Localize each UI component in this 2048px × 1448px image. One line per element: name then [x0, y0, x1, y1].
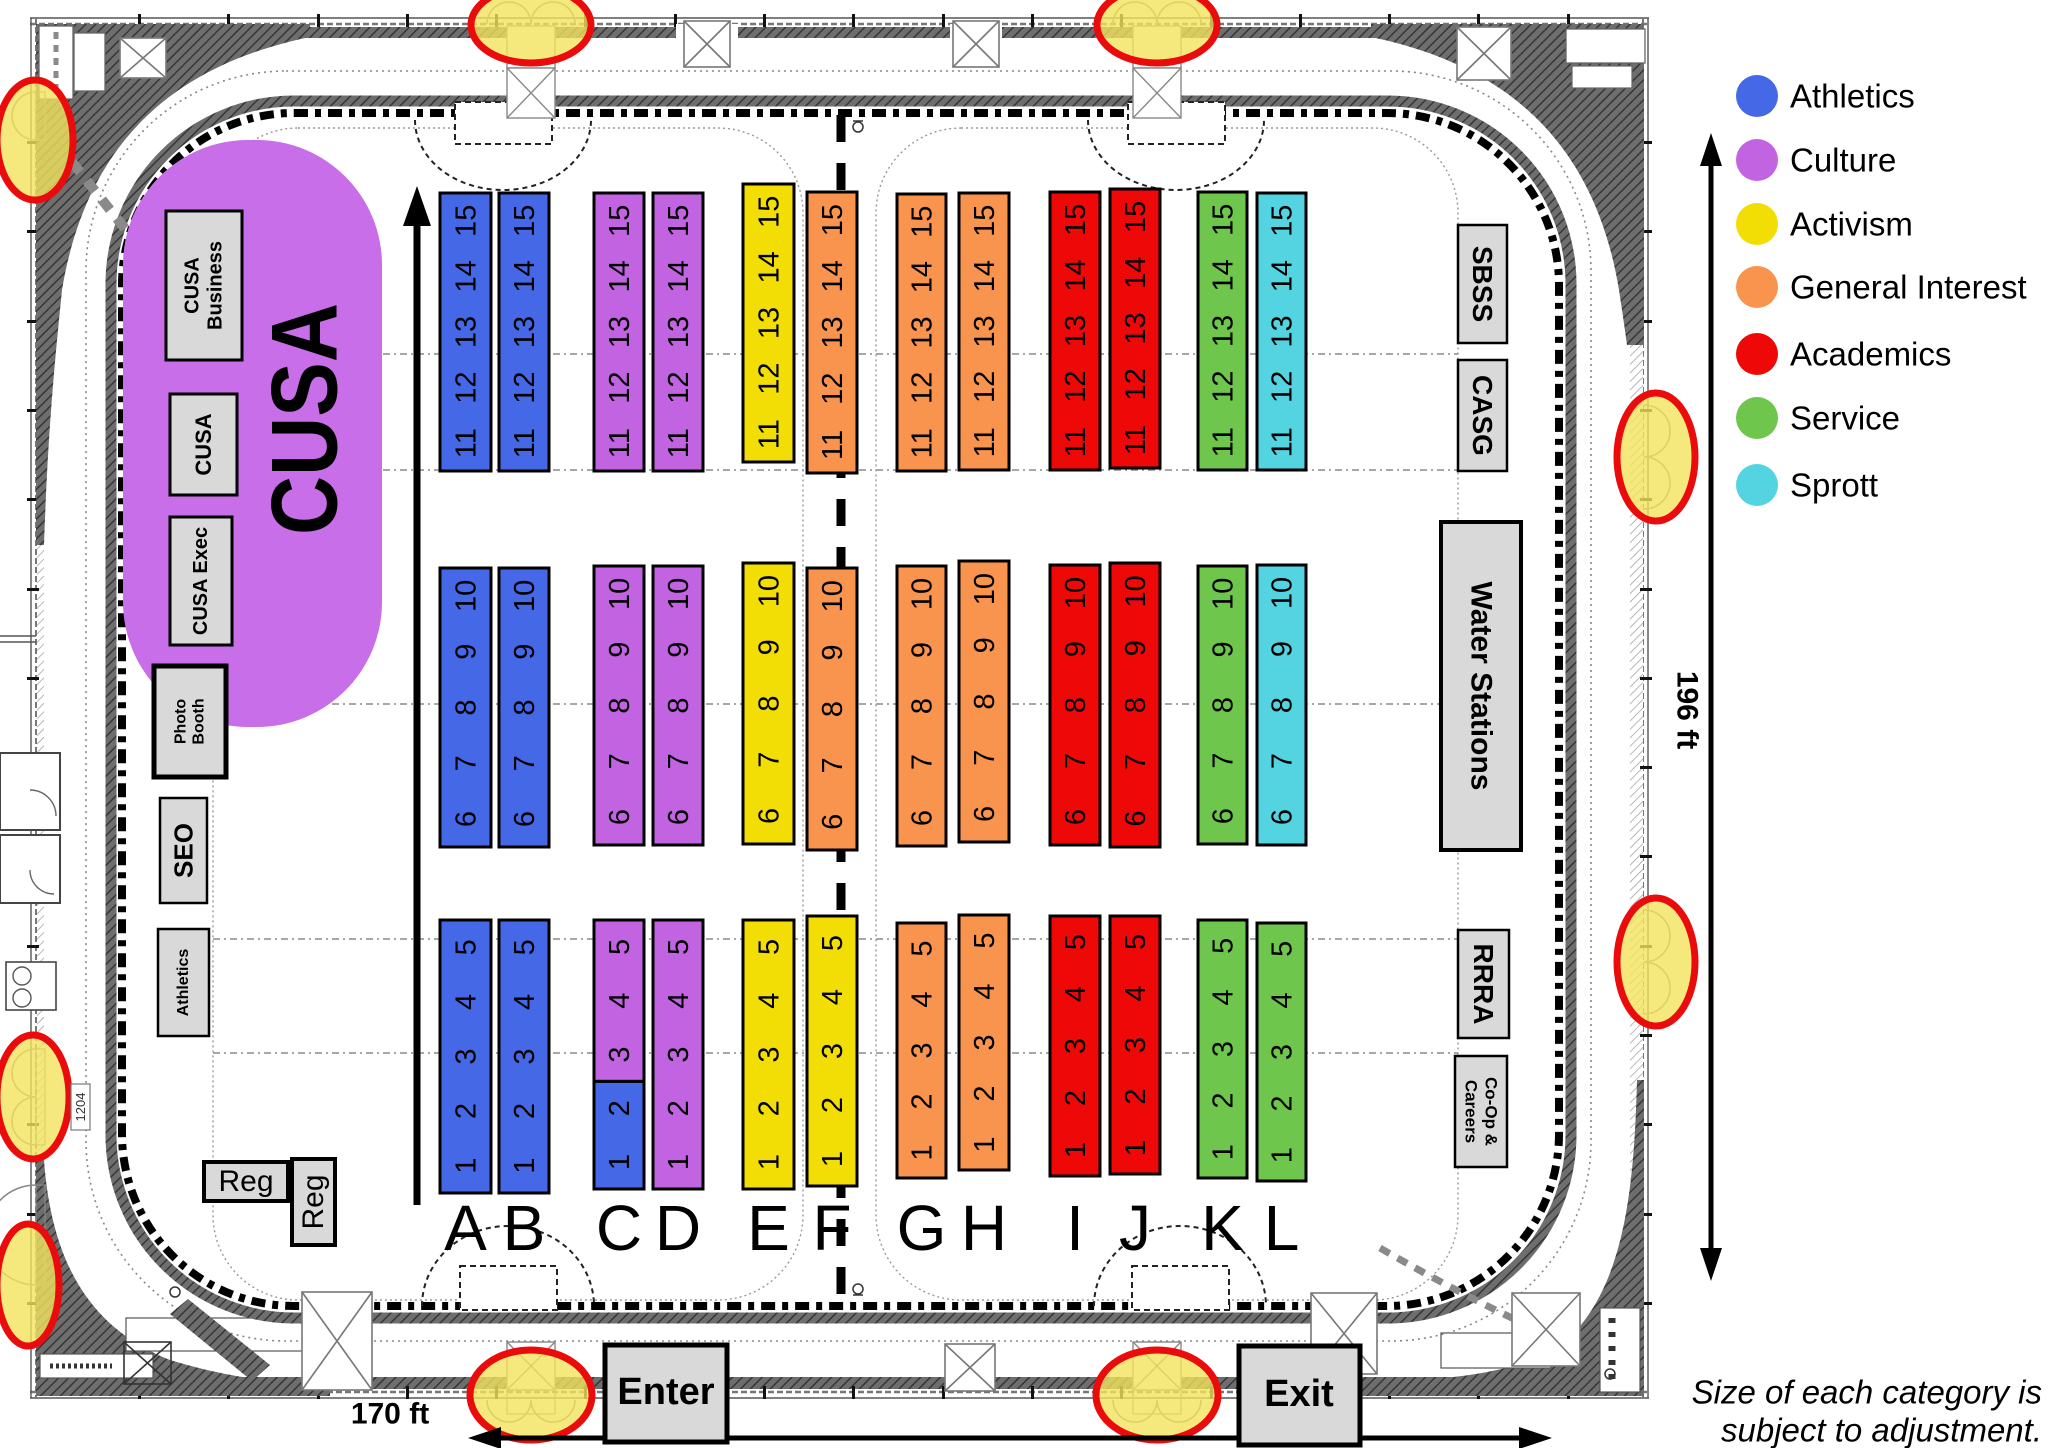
svg-text:8: 8: [817, 701, 849, 717]
svg-text:CUSA: CUSA: [182, 257, 204, 314]
svg-text:6: 6: [907, 810, 939, 826]
svg-text:11: 11: [907, 428, 939, 458]
svg-text:6: 6: [1120, 811, 1152, 827]
svg-text:4: 4: [509, 994, 541, 1010]
svg-text:15: 15: [1267, 205, 1299, 237]
svg-text:5: 5: [907, 940, 939, 956]
svg-text:14: 14: [509, 260, 541, 292]
svg-text:3: 3: [451, 1048, 483, 1064]
svg-text:5: 5: [817, 935, 849, 951]
svg-text:11: 11: [1267, 427, 1299, 457]
svg-text:2: 2: [1120, 1089, 1152, 1105]
svg-text:8: 8: [1060, 697, 1092, 713]
svg-text:13: 13: [969, 315, 1001, 347]
svg-text:Athletics: Athletics: [175, 949, 192, 1017]
svg-text:5: 5: [509, 939, 541, 955]
svg-text:13: 13: [1267, 315, 1299, 347]
svg-text:15: 15: [1120, 201, 1152, 233]
svg-text:4: 4: [604, 993, 636, 1009]
svg-text:5: 5: [1060, 934, 1092, 950]
svg-text:12: 12: [1208, 370, 1240, 402]
svg-text:H: H: [961, 1192, 1007, 1264]
svg-text:7: 7: [1208, 753, 1240, 769]
svg-text:3: 3: [817, 1043, 849, 1059]
svg-text:CUSA Exec: CUSA Exec: [190, 527, 212, 635]
svg-text:1: 1: [1120, 1140, 1152, 1156]
svg-text:8: 8: [969, 693, 1001, 709]
svg-text:2: 2: [754, 1100, 786, 1116]
svg-text:10: 10: [451, 580, 483, 612]
svg-text:5: 5: [604, 939, 636, 955]
svg-text:5: 5: [754, 939, 786, 955]
svg-text:2: 2: [1267, 1096, 1299, 1112]
svg-text:Activism: Activism: [1790, 206, 1913, 243]
svg-text:11: 11: [817, 430, 849, 460]
svg-text:4: 4: [1267, 992, 1299, 1008]
svg-text:Water Stations: Water Stations: [1465, 582, 1498, 791]
svg-text:2: 2: [817, 1097, 849, 1113]
svg-text:7: 7: [907, 754, 939, 770]
svg-text:9: 9: [663, 642, 695, 658]
svg-text:11: 11: [754, 419, 786, 449]
svg-text:7: 7: [754, 752, 786, 768]
svg-text:6: 6: [969, 806, 1001, 822]
svg-text:9: 9: [1120, 640, 1152, 656]
svg-text:10: 10: [663, 578, 695, 610]
svg-text:3: 3: [1267, 1044, 1299, 1060]
svg-text:A: A: [444, 1192, 487, 1264]
svg-text:Photo: Photo: [172, 699, 189, 745]
svg-text:7: 7: [1060, 753, 1092, 769]
svg-text:Academics: Academics: [1790, 336, 1951, 373]
svg-text:4: 4: [1060, 986, 1092, 1002]
svg-text:6: 6: [509, 811, 541, 827]
svg-text:2: 2: [509, 1103, 541, 1119]
svg-text:B: B: [503, 1192, 546, 1264]
svg-text:D: D: [655, 1192, 701, 1264]
svg-text:12: 12: [663, 371, 695, 403]
svg-text:L: L: [1264, 1192, 1300, 1264]
svg-text:8: 8: [1267, 697, 1299, 713]
svg-text:15: 15: [451, 205, 483, 237]
svg-text:2: 2: [969, 1085, 1001, 1101]
svg-text:6: 6: [451, 811, 483, 827]
svg-text:10: 10: [969, 573, 1001, 605]
svg-text:15: 15: [509, 205, 541, 237]
svg-text:10: 10: [1060, 577, 1092, 609]
svg-text:14: 14: [1208, 259, 1240, 291]
svg-text:14: 14: [451, 260, 483, 292]
svg-text:15: 15: [907, 206, 939, 238]
svg-text:12: 12: [451, 371, 483, 403]
svg-text:12: 12: [1060, 370, 1092, 402]
svg-text:10: 10: [1267, 577, 1299, 609]
svg-text:10: 10: [907, 578, 939, 610]
svg-text:1: 1: [509, 1158, 541, 1174]
svg-text:9: 9: [907, 642, 939, 658]
svg-text:5: 5: [1120, 934, 1152, 950]
svg-text:5: 5: [1267, 941, 1299, 957]
svg-text:14: 14: [969, 260, 1001, 292]
svg-text:10: 10: [509, 580, 541, 612]
svg-text:K: K: [1201, 1192, 1244, 1264]
svg-text:1: 1: [1267, 1147, 1299, 1163]
svg-text:1: 1: [1208, 1144, 1240, 1160]
svg-text:CASG: CASG: [1467, 375, 1498, 456]
svg-text:8: 8: [1208, 697, 1240, 713]
svg-text:1: 1: [1060, 1142, 1092, 1158]
svg-text:1: 1: [907, 1144, 939, 1160]
svg-text:Co-Op &: Co-Op &: [1481, 1077, 1500, 1146]
svg-text:5: 5: [663, 939, 695, 955]
svg-text:1: 1: [604, 1154, 636, 1170]
svg-text:2: 2: [451, 1103, 483, 1119]
svg-text:4: 4: [663, 993, 695, 1009]
svg-text:13: 13: [907, 316, 939, 348]
svg-text:15: 15: [1060, 204, 1092, 236]
svg-text:10: 10: [817, 580, 849, 612]
svg-text:8: 8: [1120, 697, 1152, 713]
svg-text:8: 8: [604, 697, 636, 713]
svg-text:14: 14: [1267, 260, 1299, 292]
svg-text:14: 14: [1060, 259, 1092, 291]
svg-text:2: 2: [1208, 1093, 1240, 1109]
svg-text:I: I: [1066, 1192, 1084, 1264]
svg-text:15: 15: [754, 196, 786, 228]
svg-text:10: 10: [1208, 578, 1240, 610]
svg-text:subject to adjustment.: subject to adjustment.: [1721, 1412, 2042, 1448]
svg-text:4: 4: [907, 991, 939, 1007]
svg-text:2: 2: [1060, 1090, 1092, 1106]
svg-text:11: 11: [509, 428, 541, 458]
svg-text:Exit: Exit: [1264, 1373, 1334, 1415]
svg-text:F: F: [812, 1192, 851, 1264]
svg-text:3: 3: [509, 1048, 541, 1064]
svg-text:6: 6: [754, 808, 786, 824]
svg-text:3: 3: [1120, 1037, 1152, 1053]
svg-text:12: 12: [1267, 371, 1299, 403]
svg-text:3: 3: [754, 1046, 786, 1062]
svg-text:8: 8: [451, 699, 483, 715]
svg-text:6: 6: [1267, 809, 1299, 825]
svg-text:15: 15: [604, 205, 636, 237]
svg-text:Size of each category is: Size of each category is: [1692, 1374, 2042, 1411]
svg-text:12: 12: [604, 371, 636, 403]
svg-text:3: 3: [1060, 1038, 1092, 1054]
svg-text:9: 9: [817, 645, 849, 661]
svg-text:7: 7: [969, 750, 1001, 766]
svg-text:13: 13: [1120, 312, 1152, 344]
svg-text:9: 9: [604, 642, 636, 658]
svg-text:7: 7: [1267, 753, 1299, 769]
svg-text:Enter: Enter: [617, 1371, 714, 1413]
svg-text:13: 13: [817, 316, 849, 348]
svg-text:General Interest: General Interest: [1790, 269, 2027, 306]
svg-text:4: 4: [1208, 989, 1240, 1005]
svg-text:Culture: Culture: [1790, 142, 1896, 179]
svg-text:11: 11: [969, 427, 1001, 457]
svg-text:15: 15: [1208, 204, 1240, 236]
svg-text:14: 14: [907, 261, 939, 293]
svg-text:13: 13: [1060, 315, 1092, 347]
svg-text:13: 13: [604, 316, 636, 348]
svg-text:Sprott: Sprott: [1790, 467, 1878, 504]
svg-text:2: 2: [604, 1100, 636, 1116]
svg-text:13: 13: [663, 316, 695, 348]
svg-text:Reg: Reg: [218, 1165, 273, 1198]
svg-text:4: 4: [969, 983, 1001, 999]
svg-text:3: 3: [663, 1046, 695, 1062]
svg-text:6: 6: [1060, 809, 1092, 825]
svg-text:13: 13: [509, 316, 541, 348]
svg-text:14: 14: [754, 251, 786, 283]
svg-text:3: 3: [604, 1046, 636, 1062]
svg-text:9: 9: [1060, 641, 1092, 657]
svg-text:9: 9: [1208, 641, 1240, 657]
svg-text:12: 12: [817, 373, 849, 405]
svg-text:7: 7: [1120, 754, 1152, 770]
svg-text:9: 9: [1267, 641, 1299, 657]
svg-text:6: 6: [604, 809, 636, 825]
svg-text:1: 1: [817, 1151, 849, 1167]
svg-text:3: 3: [969, 1034, 1001, 1050]
svg-text:7: 7: [451, 755, 483, 771]
svg-text:G: G: [897, 1192, 947, 1264]
svg-text:RRRA: RRRA: [1468, 944, 1499, 1025]
svg-text:14: 14: [817, 260, 849, 292]
svg-text:6: 6: [817, 814, 849, 830]
svg-text:Service: Service: [1790, 400, 1900, 437]
svg-text:Reg: Reg: [297, 1174, 330, 1229]
svg-text:8: 8: [663, 697, 695, 713]
svg-text:4: 4: [451, 994, 483, 1010]
svg-text:5: 5: [969, 932, 1001, 948]
svg-text:3: 3: [1208, 1041, 1240, 1057]
svg-text:13: 13: [754, 307, 786, 339]
svg-text:11: 11: [663, 428, 695, 458]
svg-text:8: 8: [754, 695, 786, 711]
svg-text:SBSS: SBSS: [1467, 246, 1498, 322]
svg-text:12: 12: [509, 371, 541, 403]
svg-text:14: 14: [1120, 257, 1152, 289]
svg-text:11: 11: [451, 428, 483, 458]
svg-text:E: E: [747, 1192, 790, 1264]
svg-text:12: 12: [754, 362, 786, 394]
svg-text:15: 15: [817, 204, 849, 236]
svg-text:5: 5: [451, 939, 483, 955]
svg-text:SEO: SEO: [169, 823, 199, 878]
svg-text:11: 11: [1120, 425, 1152, 455]
svg-text:11: 11: [604, 428, 636, 458]
svg-text:1: 1: [451, 1158, 483, 1174]
svg-text:2: 2: [907, 1093, 939, 1109]
svg-text:11: 11: [1060, 427, 1092, 457]
svg-text:12: 12: [969, 371, 1001, 403]
svg-text:170 ft: 170 ft: [351, 1398, 429, 1431]
svg-text:6: 6: [663, 809, 695, 825]
svg-text:13: 13: [451, 316, 483, 348]
svg-text:4: 4: [1120, 985, 1152, 1001]
svg-text:Booth: Booth: [191, 698, 208, 744]
svg-text:8: 8: [509, 699, 541, 715]
svg-text:C: C: [596, 1192, 642, 1264]
svg-text:10: 10: [754, 575, 786, 607]
svg-text:15: 15: [969, 205, 1001, 237]
svg-text:CUSA: CUSA: [252, 303, 357, 535]
svg-text:196 ft: 196 ft: [1671, 671, 1704, 749]
svg-text:7: 7: [604, 753, 636, 769]
svg-text:13: 13: [1208, 315, 1240, 347]
svg-text:Athletics: Athletics: [1790, 78, 1915, 115]
svg-text:Careers: Careers: [1462, 1080, 1481, 1143]
svg-text:12: 12: [1120, 368, 1152, 400]
svg-text:11: 11: [1208, 427, 1240, 457]
svg-text:7: 7: [509, 755, 541, 771]
svg-text:6: 6: [1208, 808, 1240, 824]
svg-text:2: 2: [663, 1100, 695, 1116]
svg-text:7: 7: [663, 753, 695, 769]
svg-text:15: 15: [663, 205, 695, 237]
svg-text:Business: Business: [205, 241, 227, 330]
svg-text:7: 7: [817, 757, 849, 773]
svg-text:14: 14: [663, 260, 695, 292]
svg-text:J: J: [1119, 1192, 1151, 1264]
svg-text:1: 1: [663, 1154, 695, 1170]
svg-text:1204: 1204: [73, 1093, 88, 1122]
svg-text:12: 12: [907, 372, 939, 404]
svg-text:1: 1: [969, 1136, 1001, 1152]
svg-text:1: 1: [754, 1154, 786, 1170]
svg-text:CUSA: CUSA: [191, 413, 216, 475]
svg-text:9: 9: [754, 639, 786, 655]
svg-text:8: 8: [907, 698, 939, 714]
svg-text:14: 14: [604, 260, 636, 292]
svg-text:10: 10: [604, 578, 636, 610]
svg-text:3: 3: [907, 1042, 939, 1058]
svg-text:5: 5: [1208, 938, 1240, 954]
svg-text:10: 10: [1120, 575, 1152, 607]
svg-text:9: 9: [969, 637, 1001, 653]
svg-text:9: 9: [509, 644, 541, 660]
svg-text:4: 4: [817, 989, 849, 1005]
svg-text:9: 9: [451, 644, 483, 660]
svg-text:4: 4: [754, 993, 786, 1009]
